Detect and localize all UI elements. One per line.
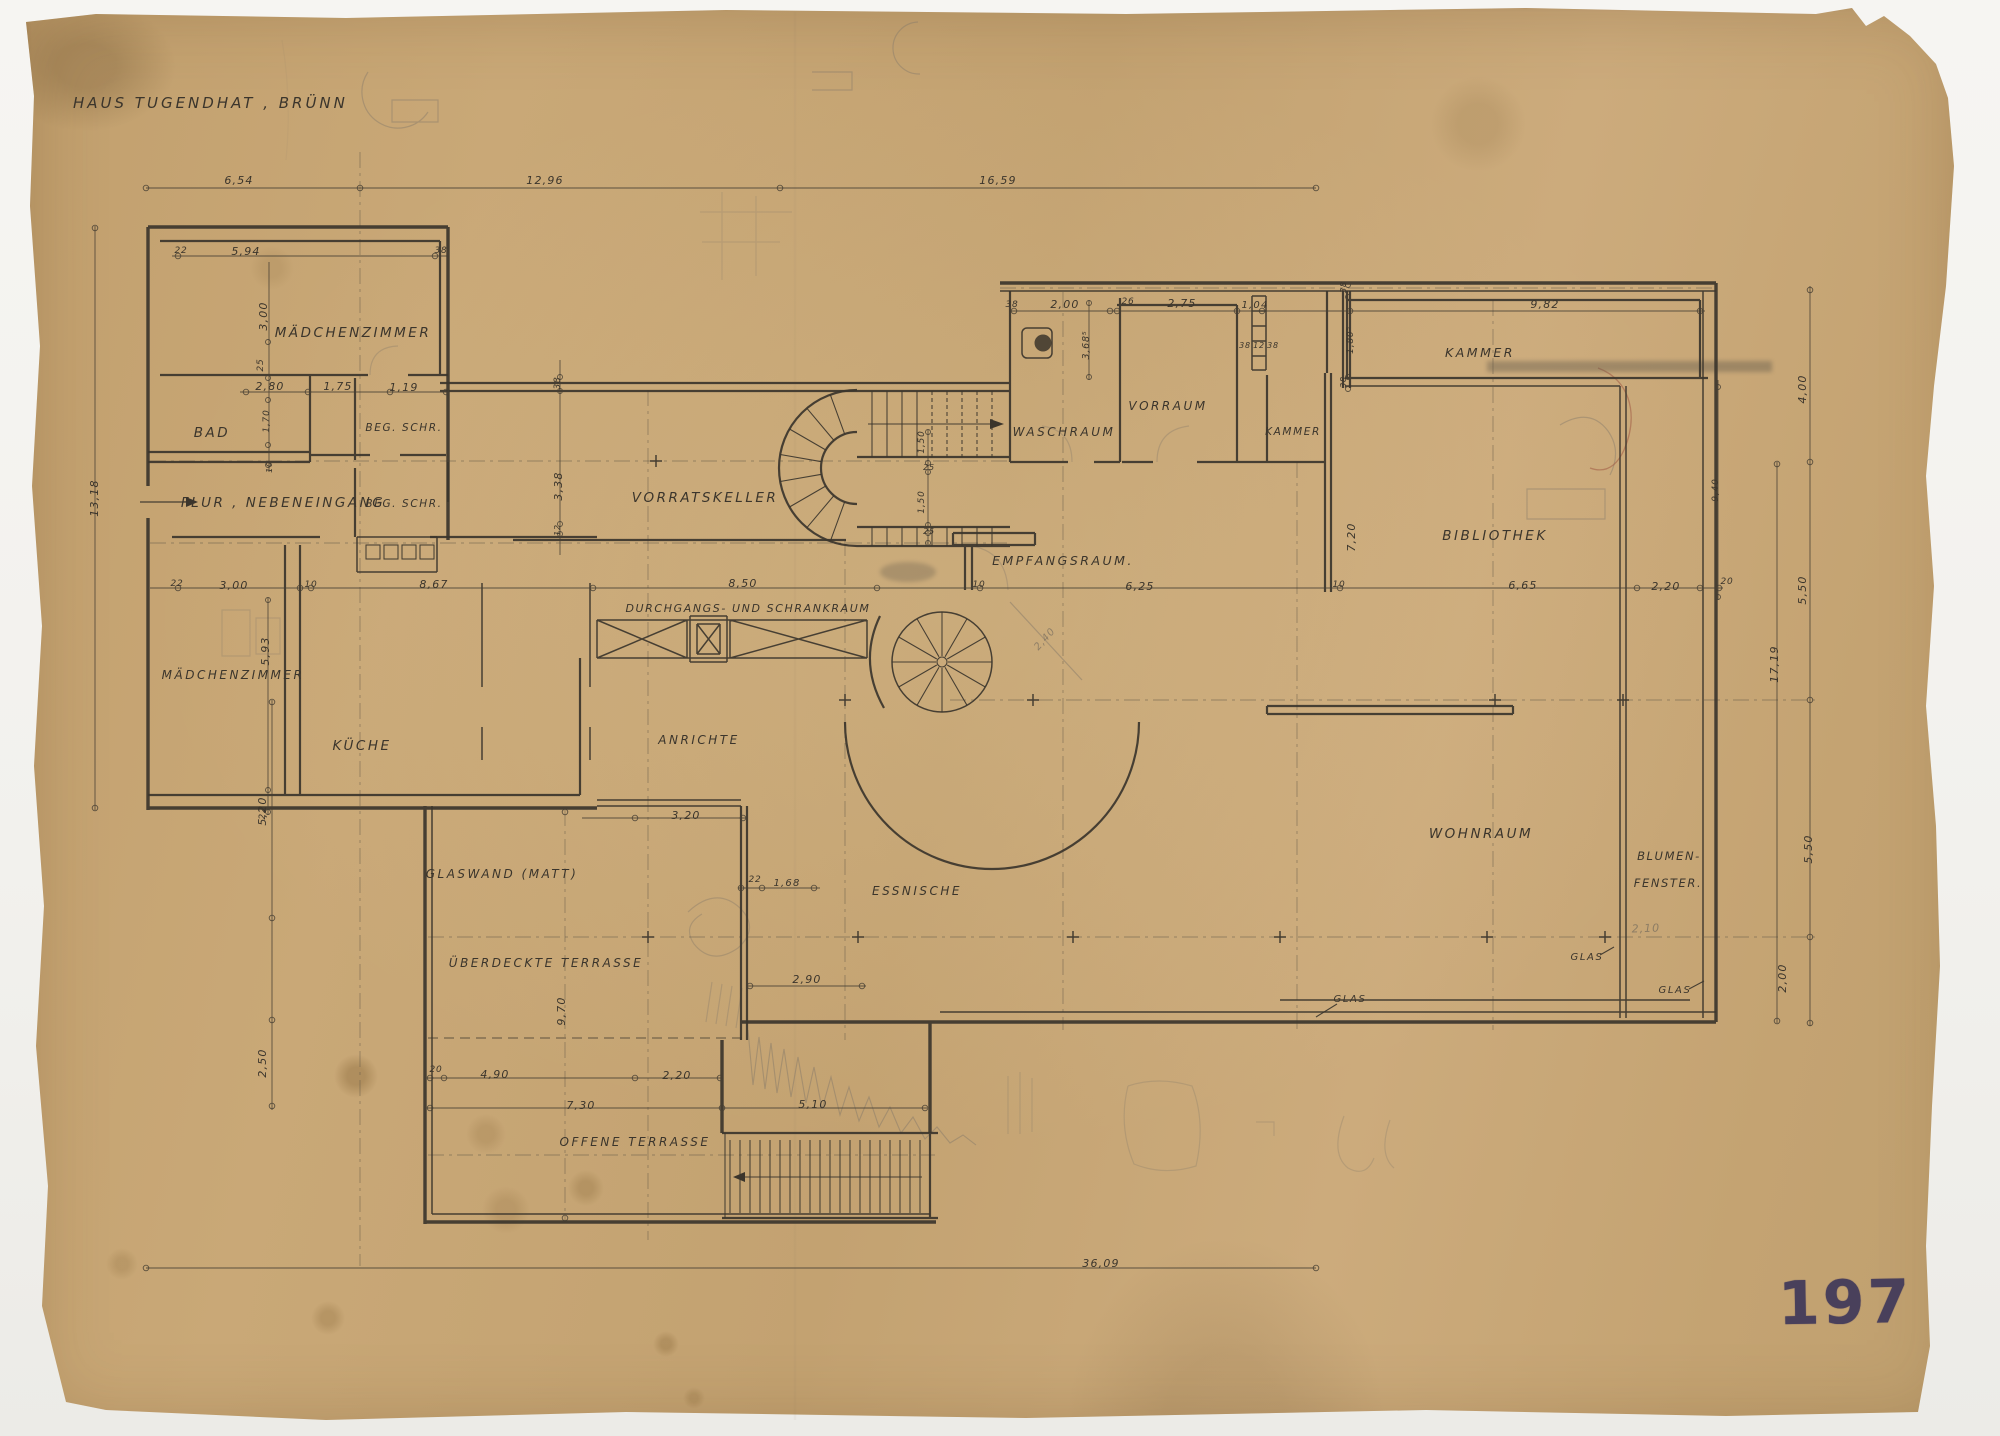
dim-320: 3,20	[671, 809, 700, 822]
dim-1318: 13,18	[88, 479, 101, 517]
walls-outer	[148, 227, 1716, 1224]
room-label-offene-terrasse: OFFENE TERRASSE	[560, 1135, 711, 1149]
dim-175: 1,75	[323, 380, 352, 393]
dim-h38a: 38	[1239, 341, 1251, 350]
dim-119: 1,19	[389, 381, 418, 394]
label-glas-b: GLAS	[1571, 952, 1604, 963]
dim-f25a: 25	[923, 463, 935, 472]
dim-b170: 1,70	[262, 409, 272, 432]
room-label-maedchenzimmer-top: MÄDCHENZIMMER	[275, 323, 431, 341]
dim-n200: 2,00	[1776, 963, 1789, 992]
dim-490: 4,90	[480, 1068, 509, 1081]
dim-550a: 5,50	[1796, 575, 1809, 604]
room-label-kammer-klein: KAMMER	[1265, 426, 1321, 438]
pencil-sketch-layer: 2,10 2,40	[222, 12, 1772, 1420]
dim-625: 6,25	[1125, 580, 1154, 593]
dim-b300: 3,00	[257, 301, 270, 330]
dim-c10: 10	[304, 580, 317, 590]
dim-m20: 20	[429, 1065, 442, 1075]
room-label-vorratskeller: VORRATSKELLER	[632, 490, 779, 506]
terrace-stair	[725, 1133, 922, 1218]
room-label-empfangsraum: EMPFANGSRAUM.	[992, 553, 1134, 568]
dim-1296: 12,96	[526, 174, 564, 187]
room-label-blumen: BLUMEN-	[1637, 849, 1701, 863]
dim-h104: 1,04	[1241, 300, 1268, 311]
essnische-curved-wall	[845, 722, 1139, 869]
dim-665: 6,65	[1508, 579, 1537, 592]
room-label-bad: BAD	[194, 425, 230, 441]
main-stair	[779, 390, 1004, 546]
dim-c10b: 10	[972, 580, 985, 590]
dim-220: 2,20	[1651, 580, 1680, 593]
toilet-icon	[1022, 328, 1052, 358]
dim-520: 5,20	[256, 796, 269, 825]
dim-280: 2,80	[255, 380, 284, 393]
dim-867: 8,67	[419, 578, 448, 591]
room-label-fenster: FENSTER.	[1634, 876, 1703, 890]
label-glas-c: GLAS	[1659, 985, 1692, 996]
dim-3609: 36,09	[1082, 1257, 1120, 1270]
dim-c10c: 10	[1332, 580, 1345, 590]
room-label-vorraum: VORRAUM	[1128, 399, 1207, 413]
dim-730: 7,30	[566, 1099, 595, 1112]
dim-940: 9,40	[1711, 478, 1721, 501]
room-label-kueche: KÜCHE	[332, 736, 391, 754]
dim-b25: 25	[256, 358, 266, 371]
spiral-stair	[870, 612, 992, 712]
room-label-bibliothek: BIBLIOTHEK	[1442, 528, 1547, 544]
axis-grid	[150, 152, 1816, 1266]
dim-g200: 2,00	[1050, 298, 1079, 311]
dim-720: 7,20	[1345, 522, 1358, 551]
dim-a22: 22	[174, 246, 187, 256]
dim-368: 3,68⁵	[1081, 331, 1092, 360]
dim-f150b: 1,50	[917, 490, 927, 513]
sheet-number-stamp: 197	[1777, 1267, 1928, 1340]
dim-e38: 38	[553, 376, 563, 389]
dim-510: 5,10	[798, 1098, 827, 1111]
room-label-wohnraum: WOHNRAUM	[1429, 826, 1533, 842]
room-label-kammer-lang: KAMMER	[1445, 345, 1515, 360]
dim-338: 3,38	[552, 471, 565, 500]
dim-h38b: 38	[1267, 341, 1279, 350]
dim-g38: 38	[1005, 300, 1018, 310]
dim-1659: 16,59	[979, 174, 1017, 187]
dim-b10: 10	[265, 461, 274, 473]
dim-1719: 17,19	[1768, 645, 1781, 683]
dim-290: 2,90	[792, 973, 821, 986]
dim-593: 5,93	[259, 636, 272, 665]
dim-f25b: 25	[923, 527, 935, 536]
room-label-essnische: ESSNISCHE	[872, 884, 962, 898]
text-labels: HAUS TUGENDHAT , BRÜNN MÄDCHENZIMMER BAD…	[73, 93, 1815, 1270]
dim-250: 2,50	[256, 1048, 269, 1077]
room-label-anrichte: ANRICHTE	[657, 733, 739, 747]
walls-inner	[148, 241, 1716, 1218]
dim-594: 5,94	[231, 245, 260, 258]
room-label-maedchenzimmer-unten: MÄDCHENZIMMER	[162, 667, 305, 682]
wardrobe-cabinets	[597, 616, 867, 662]
dim-h12: 12	[1253, 341, 1265, 350]
room-label-beg-schr-2: BEG. SCHR.	[365, 498, 442, 510]
floor-plan-drawing: 2,10 2,40	[0, 0, 2000, 1436]
drawing-title: HAUS TUGENDHAT , BRÜNN	[73, 93, 348, 112]
room-label-ueberdeckte-terrasse: ÜBERDECKTE TERRASSE	[449, 954, 643, 970]
dim-180: 1,80⁵	[1346, 326, 1356, 354]
dim-h26: 26	[1121, 297, 1134, 307]
label-glas-a: GLAS	[1334, 994, 1367, 1005]
dimension-ticks	[92, 185, 1813, 1271]
dim-550b: 5,50	[1802, 834, 1815, 863]
dim-c22: 22	[170, 579, 183, 589]
dim-300: 3,00	[219, 579, 248, 592]
room-label-durchgang: DURCHGANGS- UND SCHRANKRAUM	[625, 602, 870, 615]
dimension-lines	[92, 185, 1813, 1271]
dim-l22: 22	[748, 875, 761, 885]
room-label-beg-schr-1: BEG. SCHR.	[365, 422, 442, 434]
glas-leader-lines	[1316, 947, 1704, 1017]
dim-i38b: 38	[1339, 376, 1348, 388]
dim-m220: 2,20	[662, 1069, 691, 1082]
dim-168: 1,68	[773, 878, 800, 889]
scanned-drawing-page: 2,10 2,40	[0, 0, 2000, 1436]
dim-a38: 38	[434, 246, 447, 256]
dim-c20: 20	[1720, 577, 1733, 587]
dim-e12: 12	[553, 524, 562, 536]
pencil-dim-210: 2,10	[1631, 922, 1660, 936]
room-label-flur: FLUR , NEBENEINGANG	[181, 495, 385, 511]
dim-654: 6,54	[224, 174, 253, 187]
room-label-glaswand: GLASWAND (MATT)	[426, 867, 579, 881]
room-label-waschraum: WASCHRAUM	[1013, 425, 1116, 439]
dim-h275: 2,75	[1167, 297, 1196, 310]
dim-982: 9,82	[1530, 298, 1559, 311]
dim-i38a: 38	[1339, 281, 1348, 293]
dim-850: 8,50	[728, 577, 757, 590]
dim-f150a: 1,50	[917, 430, 927, 453]
dim-400: 4,00	[1796, 374, 1809, 403]
dim-970: 9,70	[555, 996, 568, 1025]
